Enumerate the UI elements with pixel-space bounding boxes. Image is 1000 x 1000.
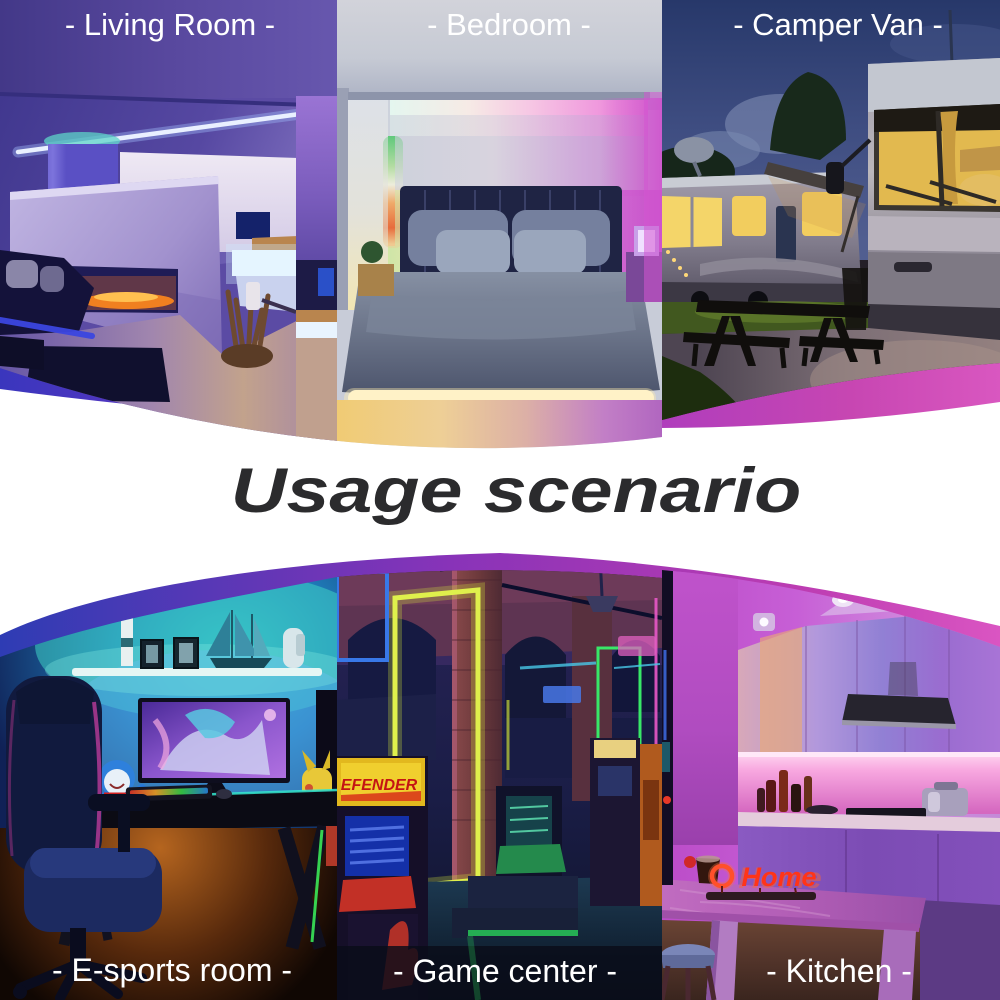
svg-text:- Kitchen -: - Kitchen - — [766, 953, 912, 989]
svg-text:- Living Room -: - Living Room - — [65, 7, 275, 42]
svg-text:EFENDER: EFENDER — [341, 777, 418, 794]
svg-text:Usage scenario: Usage scenario — [231, 455, 801, 526]
svg-text:Home: Home — [741, 862, 816, 892]
svg-text:- Camper Van -: - Camper Van - — [733, 7, 943, 42]
svg-text:- Game center -: - Game center - — [393, 953, 617, 989]
svg-text:- E-sports room -: - E-sports room - — [52, 952, 292, 988]
svg-text:- Bedroom -: - Bedroom - — [427, 7, 591, 42]
